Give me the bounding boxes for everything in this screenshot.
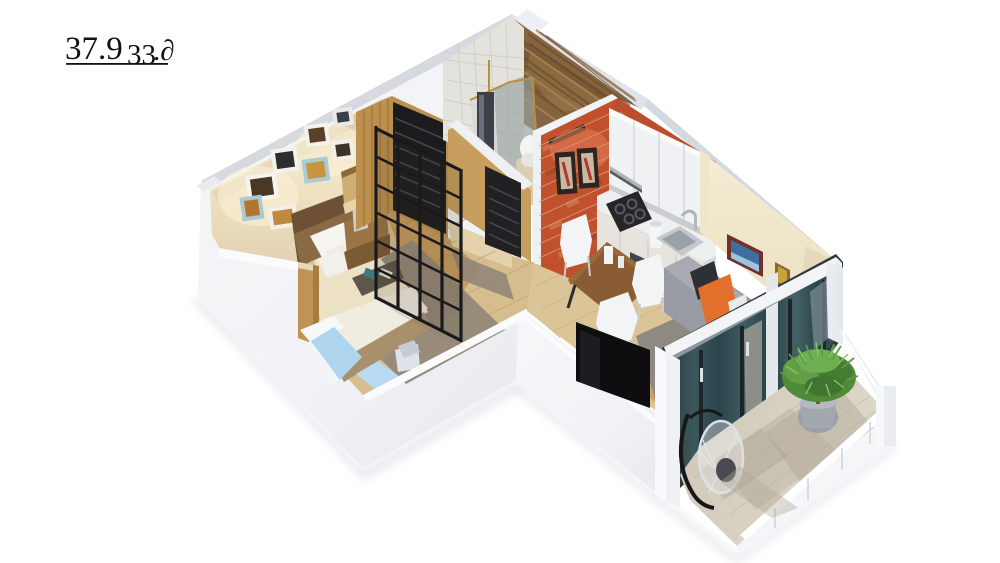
svg-text:.∂: .∂ [153, 35, 175, 67]
svg-text:37.9: 37.9 [65, 31, 123, 67]
svg-text:33: 33 [127, 39, 156, 71]
